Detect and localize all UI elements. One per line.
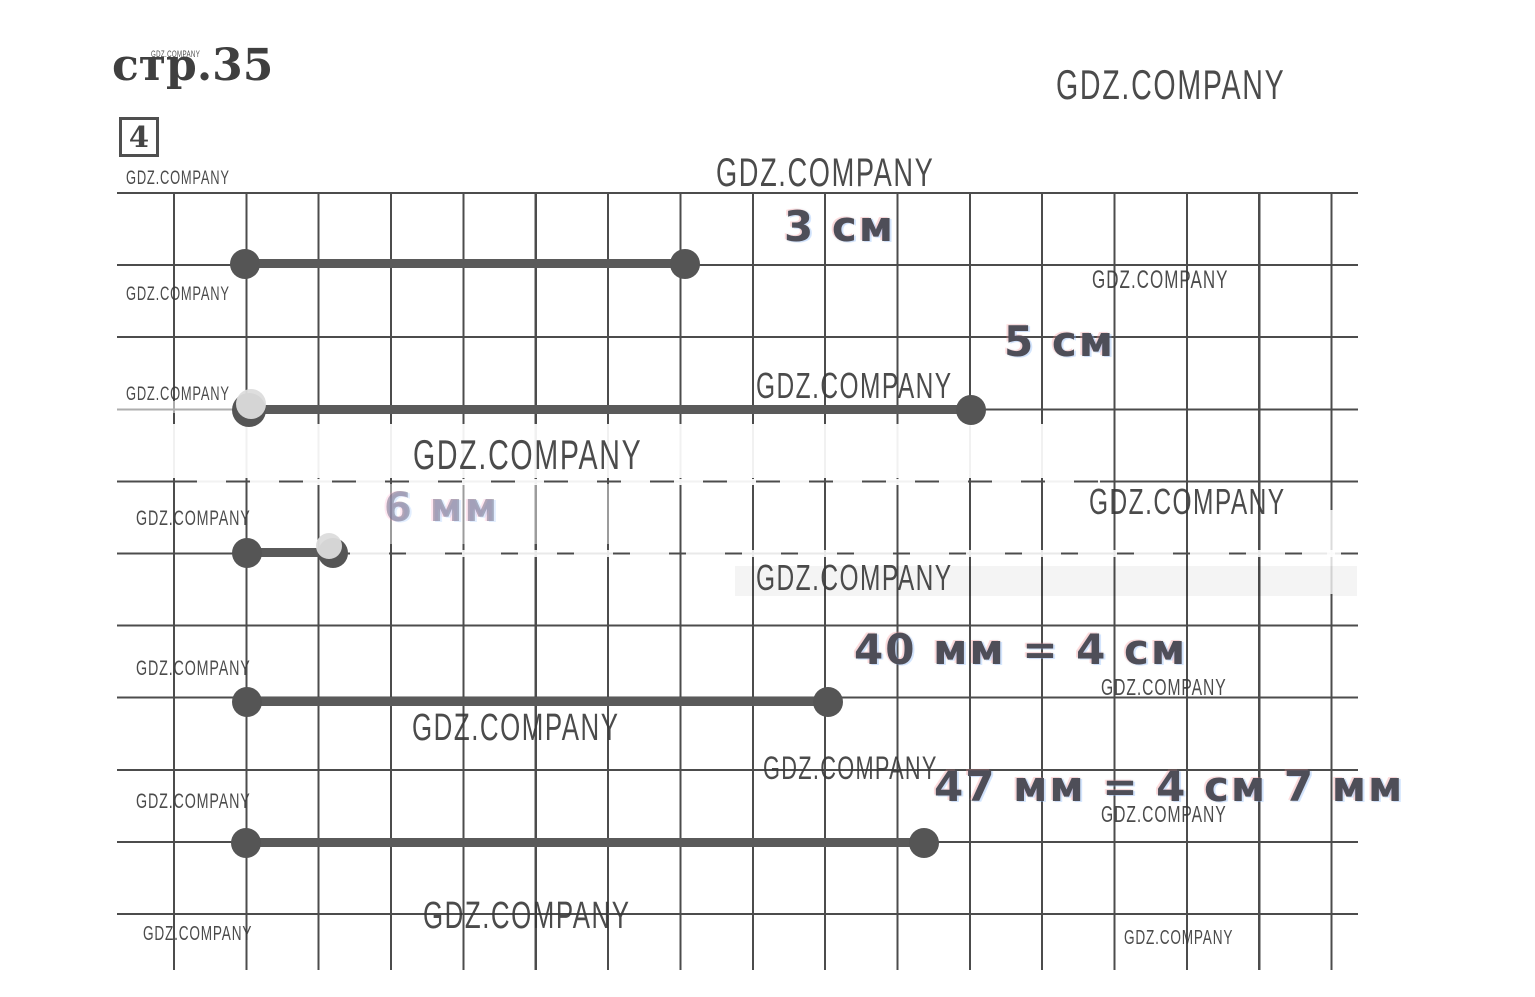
watermark: GDZ.COMPANY — [126, 385, 279, 404]
watermark-text: GDZ.COMPANY — [1056, 64, 1285, 106]
watermark: GDZ.COMPANY — [756, 560, 1045, 596]
watermark-text: GDZ.COMPANY — [1101, 676, 1227, 699]
page-number: стр.35 — [112, 44, 273, 88]
watermark-text: GDZ.COMPANY — [1101, 803, 1227, 826]
measurement-label: 5 см — [1004, 320, 1115, 364]
watermark-text: GDZ.COMPANY — [423, 897, 631, 935]
watermark-text: GDZ.COMPANY — [756, 560, 953, 596]
segment-bar — [249, 405, 971, 414]
watermark-text: GDZ.COMPANY — [136, 791, 251, 812]
segment-endpoint-right — [813, 687, 843, 717]
segment-endpoint-left — [232, 538, 262, 568]
watermark: GDZ.COMPANY — [1089, 484, 1378, 520]
worksheet-page: 3 см5 см6 мм40 мм = 4 см47 мм = 4 см 7 м… — [0, 0, 1535, 997]
watermark-text: GDZ.COMPANY — [756, 368, 953, 404]
measurement-label: 6 мм — [384, 487, 499, 529]
watermark: GDZ.COMPANY — [136, 658, 305, 679]
watermark: GDZ.COMPANY — [1101, 676, 1286, 699]
exercise-number: 4 — [129, 123, 149, 152]
segment-bar — [245, 259, 685, 268]
watermark: GDZ.COMPANY — [143, 924, 304, 944]
grid-vertical-lines — [173, 192, 1333, 970]
watermark: GDZ.COMPANY — [126, 169, 279, 188]
watermark-text: GDZ.COMPANY — [413, 434, 642, 476]
watermark: GDZ.COMPANY — [423, 897, 728, 935]
watermark: GDZ.COMPANY — [1056, 64, 1393, 106]
watermark: GDZ.COMPANY — [413, 434, 750, 476]
segment-endpoint-left — [230, 249, 260, 279]
measurement-label: 40 мм = 4 см — [854, 628, 1187, 672]
watermark-text: GDZ.COMPANY — [1124, 928, 1233, 948]
watermark: GDZ.COMPANY — [756, 368, 1045, 404]
watermark: GDZ.COMPANY — [126, 285, 279, 304]
segment-bar — [246, 838, 924, 847]
segment-bar — [247, 697, 828, 706]
watermark-text: GDZ.COMPANY — [763, 752, 938, 784]
watermark-text: GDZ.COMPANY — [126, 385, 230, 404]
endpoint-white-wash — [316, 533, 342, 559]
watermark-text: GDZ.COMPANY — [136, 658, 251, 679]
watermark: GDZ.COMPANY — [763, 752, 1020, 784]
segment-endpoint-left — [232, 687, 262, 717]
watermark-text: GDZ.COMPANY — [716, 153, 934, 193]
watermark-text: GDZ.COMPANY — [126, 285, 230, 304]
watermark: GDZ.COMPANY — [1092, 268, 1293, 293]
watermark: GDZ.COMPANY — [1101, 803, 1286, 826]
watermark-text: GDZ.COMPANY — [1092, 268, 1229, 293]
watermark: GDZ.COMPANY — [716, 153, 1037, 193]
watermark: GDZ.COMPANY — [136, 508, 305, 529]
watermark: GDZ.COMPANY — [1124, 928, 1285, 948]
watermark: GDZ.COMPANY — [136, 791, 305, 812]
watermark-text: GDZ.COMPANY — [136, 508, 251, 529]
segment-endpoint-right — [909, 828, 939, 858]
watermark-text: GDZ.COMPANY — [412, 709, 620, 747]
segment-endpoint-left — [231, 828, 261, 858]
watermark-text: GDZ.COMPANY — [143, 924, 252, 944]
exercise-number-box: 4 — [119, 117, 159, 157]
watermark: GDZ.COMPANY — [412, 709, 717, 747]
watermark-text: GDZ.COMPANY — [126, 169, 230, 188]
measurement-label: 3 см — [784, 205, 895, 249]
watermark-text: GDZ.COMPANY — [1089, 484, 1286, 520]
segment-endpoint-right — [670, 249, 700, 279]
